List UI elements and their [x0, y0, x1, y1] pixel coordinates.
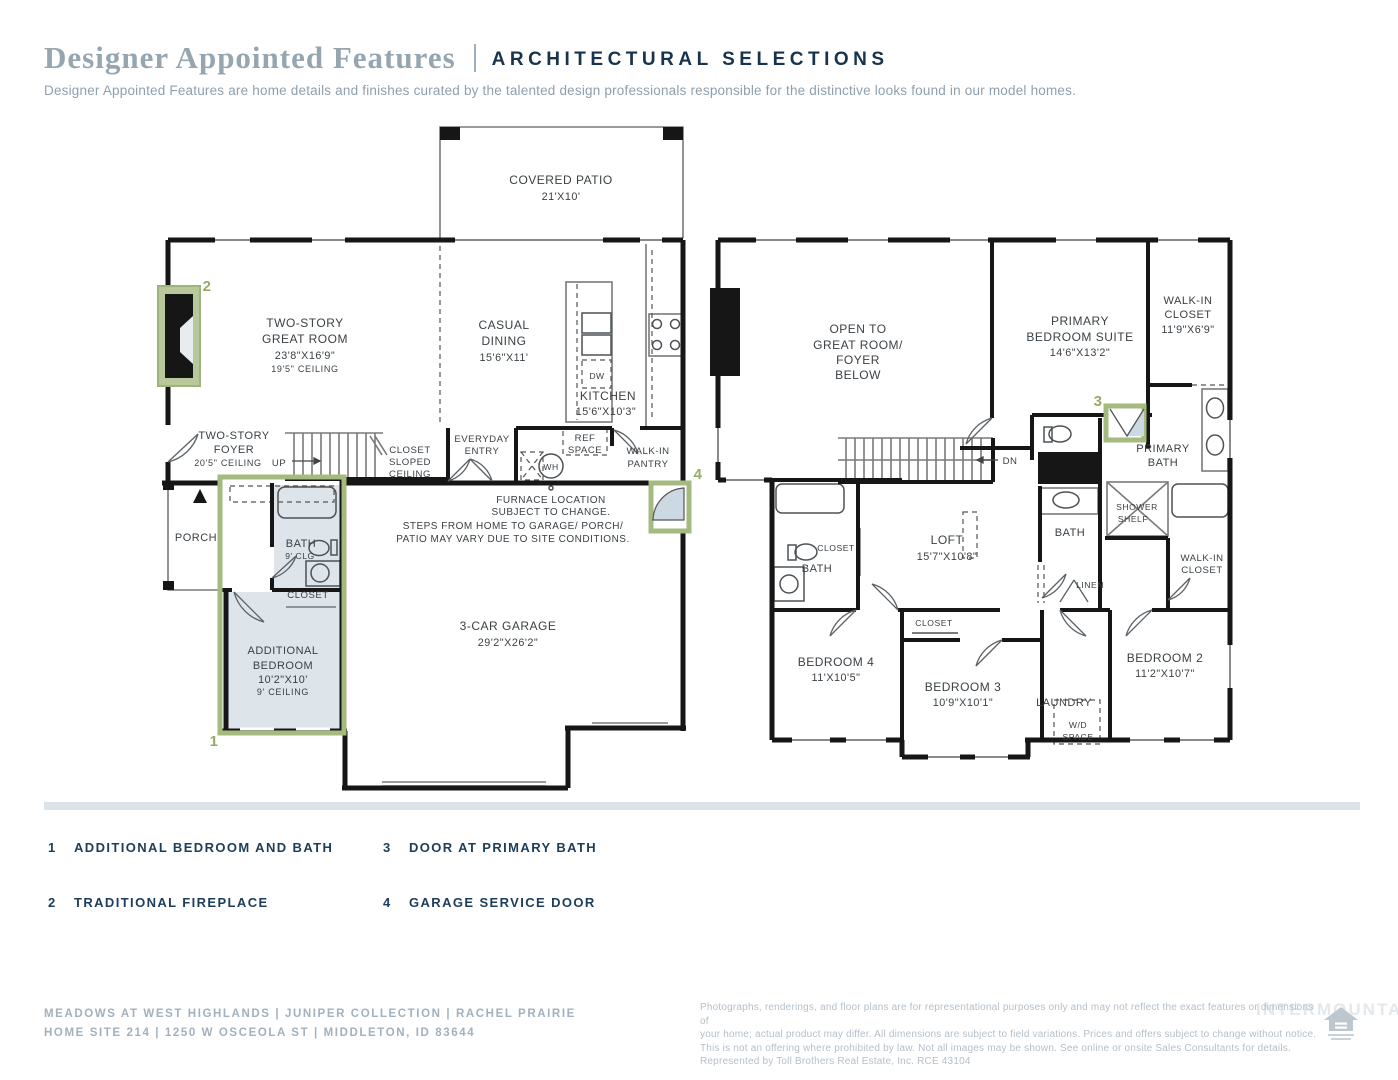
svg-text:BATH: BATH — [1148, 457, 1179, 469]
dn-label: DN — [1003, 456, 1018, 467]
community-info: MEADOWS AT WEST HIGHLANDS | JUNIPER COLL… — [44, 1005, 576, 1043]
marker-1: 1 — [210, 733, 219, 750]
svg-text:10'2"X10': 10'2"X10' — [258, 674, 308, 686]
svg-text:CEILING: CEILING — [389, 469, 431, 480]
legend-item-2: 2 TRADITIONAL FIREPLACE — [48, 895, 269, 910]
bedroom2-label: BEDROOM 2 — [1127, 651, 1204, 665]
marker-2: 2 — [203, 278, 212, 295]
primary-bath-label: PRIMARY — [1136, 443, 1190, 455]
everyday-entry-label: EVERYDAY — [454, 434, 509, 445]
svg-text:CLOSET: CLOSET — [1164, 309, 1211, 321]
legend-num-1: 1 — [48, 840, 74, 855]
svg-text:ENTRY: ENTRY — [465, 446, 500, 457]
floor-plans: COVERED PATIO 21'X10' TWO-STORY GREAT RO… — [0, 0, 1398, 810]
legend-item-3: 3 DOOR AT PRIMARY BATH — [383, 840, 597, 855]
svg-text:BEDROOM SUITE: BEDROOM SUITE — [1026, 330, 1133, 344]
svg-text:29'2"X26'2": 29'2"X26'2" — [478, 637, 539, 649]
closet-sloped-label: CLOSET — [389, 445, 430, 456]
closet-left-label: CLOSET — [817, 543, 855, 553]
svg-text:11'X10'5": 11'X10'5" — [812, 672, 861, 684]
legend-item-1: 1 ADDITIONAL BEDROOM AND BATH — [48, 840, 333, 855]
foyer-label: TWO-STORY — [198, 430, 269, 442]
svg-text:9' CLG: 9' CLG — [285, 551, 314, 561]
legal-disclaimer: Photographs, renderings, and floor plans… — [700, 1001, 1325, 1069]
legend-item-4: 4 GARAGE SERVICE DOOR — [383, 895, 596, 910]
open-below-label: OPEN TO — [829, 322, 886, 336]
section-divider — [44, 802, 1360, 810]
dishwasher-label: DW — [589, 371, 605, 381]
bath-left-label: BATH — [802, 563, 833, 575]
svg-text:SHELF: SHELF — [1118, 514, 1148, 524]
svg-text:14'6"X13'2": 14'6"X13'2" — [1050, 347, 1111, 359]
covered-patio-label: COVERED PATIO — [509, 173, 612, 187]
marker-4: 4 — [694, 466, 703, 483]
pantry-label: WALK-IN — [626, 446, 669, 457]
furnace-note: FURNACE LOCATION — [496, 495, 606, 506]
svg-text:CLOSET: CLOSET — [1181, 565, 1222, 576]
svg-text:11'9"X6'9": 11'9"X6'9" — [1161, 324, 1214, 336]
laundry-label: LAUNDRY — [1036, 697, 1092, 709]
fireplace-feature — [158, 286, 200, 386]
loft-label: LOFT — [931, 533, 964, 547]
marker-3: 3 — [1094, 393, 1103, 410]
walk-in-closet1-label: WALK-IN — [1164, 295, 1213, 307]
wd-space-label: W/D — [1069, 720, 1087, 730]
closet3-label: CLOSET — [915, 618, 953, 628]
porch-label: PORCH — [175, 532, 217, 544]
community-line1: MEADOWS AT WEST HIGHLANDS | JUNIPER COLL… — [44, 1005, 576, 1024]
linen-label: LINEN — [1076, 580, 1104, 590]
garage-service-door-feature — [651, 483, 689, 531]
svg-text:GREAT ROOM/: GREAT ROOM/ — [813, 338, 903, 352]
legend-label-1: ADDITIONAL BEDROOM AND BATH — [74, 840, 333, 855]
svg-text:SLOPED: SLOPED — [389, 457, 431, 468]
garage-label: 3-CAR GARAGE — [460, 619, 557, 633]
bedroom4-label: BEDROOM 4 — [798, 655, 875, 669]
community-line2: HOME SITE 214 | 1250 W OSCEOLA ST | MIDD… — [44, 1024, 576, 1043]
svg-text:BEDROOM: BEDROOM — [253, 660, 313, 672]
svg-text:10'9"X10'1": 10'9"X10'1" — [933, 697, 994, 709]
covered-patio-dims: 21'X10' — [542, 191, 581, 203]
svg-text:SUBJECT TO CHANGE.: SUBJECT TO CHANGE. — [491, 507, 610, 518]
water-heater-label: WH — [543, 462, 558, 472]
legend-label-4: GARAGE SERVICE DOOR — [409, 895, 596, 910]
steps-note: STEPS FROM HOME TO GARAGE/ PORCH/ — [403, 521, 624, 532]
great-room-label: TWO-STORY — [266, 316, 343, 330]
casual-dining-label: CASUAL — [478, 318, 529, 332]
svg-text:SPACE: SPACE — [568, 445, 602, 456]
floor1-labels: COVERED PATIO 21'X10' TWO-STORY GREAT RO… — [175, 173, 703, 750]
ref-space-label: REF — [575, 433, 596, 444]
great-room-dims: 23'8"X16'9" — [275, 350, 336, 362]
svg-text:SPACE: SPACE — [1063, 732, 1094, 742]
primary-bath-door-feature — [1106, 406, 1144, 440]
svg-text:FOYER: FOYER — [214, 444, 254, 456]
svg-text:20'5" CEILING: 20'5" CEILING — [194, 458, 262, 468]
svg-text:PANTRY: PANTRY — [627, 459, 668, 470]
kitchen-label: KITCHEN — [580, 389, 636, 403]
svg-text:GREAT ROOM: GREAT ROOM — [262, 332, 348, 346]
svg-text:PATIO MAY VARY DUE TO SITE CON: PATIO MAY VARY DUE TO SITE CONDITIONS. — [396, 534, 630, 545]
svg-text:15'7"X10'8": 15'7"X10'8" — [917, 551, 978, 563]
svg-text:19'5" CEILING: 19'5" CEILING — [271, 364, 339, 374]
up-label: UP — [272, 458, 286, 469]
legend-num-4: 4 — [383, 895, 409, 910]
svg-text:FOYER: FOYER — [836, 353, 880, 367]
bath1-label: BATH — [286, 538, 317, 550]
walk-in-closet2-label: WALK-IN — [1180, 553, 1223, 564]
legend-label-2: TRADITIONAL FIREPLACE — [74, 895, 269, 910]
floor2-labels: OPEN TO GREAT ROOM/ FOYER BELOW PRIMARY … — [798, 295, 1224, 742]
equal-housing-logo — [1322, 1006, 1360, 1047]
primary-suite-label: PRIMARY — [1051, 314, 1109, 328]
legend-label-3: DOOR AT PRIMARY BATH — [409, 840, 597, 855]
svg-text:9' CEILING: 9' CEILING — [257, 687, 309, 697]
svg-text:BELOW: BELOW — [835, 368, 881, 382]
legend-num-2: 2 — [48, 895, 74, 910]
svg-text:15'6"X10'3": 15'6"X10'3" — [576, 406, 637, 418]
closet1-label: CLOSET — [287, 590, 328, 601]
bath-mid-label: BATH — [1055, 527, 1086, 539]
shower-shelf-label: SHOWER — [1116, 502, 1158, 512]
bedroom3-label: BEDROOM 3 — [925, 680, 1002, 694]
additional-bedroom-label: ADDITIONAL — [247, 645, 318, 657]
legend-num-3: 3 — [383, 840, 409, 855]
svg-text:15'6"X11': 15'6"X11' — [480, 352, 529, 364]
svg-text:DINING: DINING — [482, 334, 527, 348]
svg-text:11'2"X10'7": 11'2"X10'7" — [1135, 668, 1195, 680]
